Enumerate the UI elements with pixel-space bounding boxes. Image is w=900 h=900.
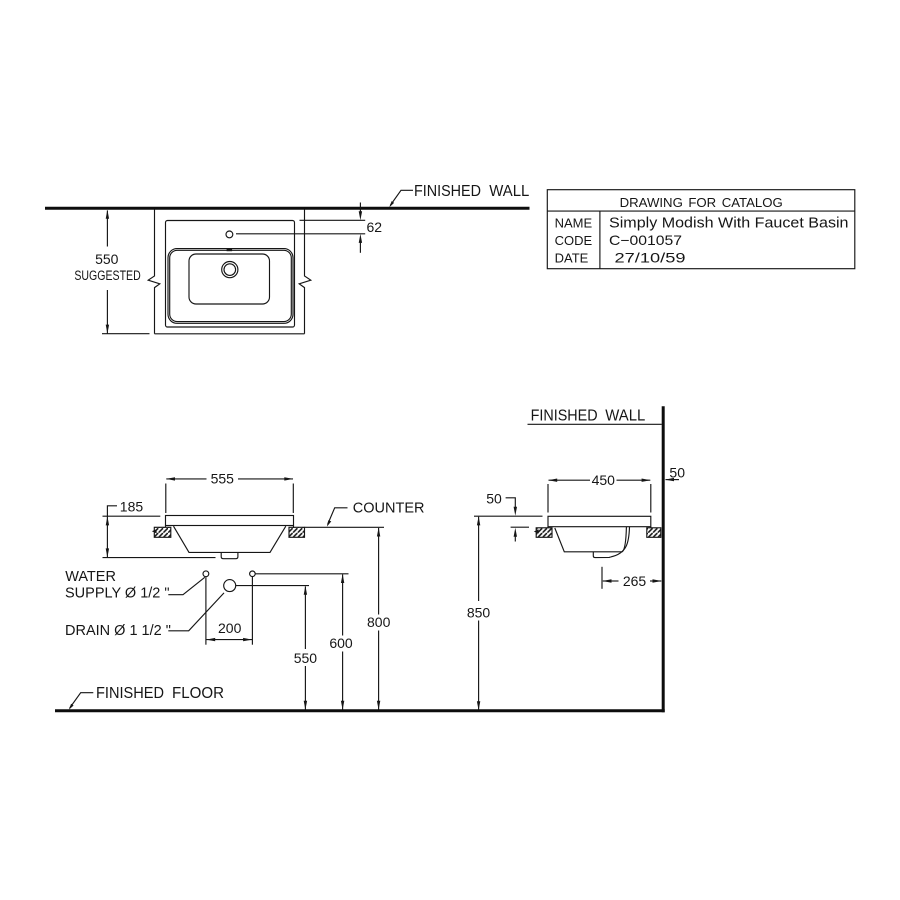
svg-text:NAME: NAME [555, 216, 593, 231]
svg-text:450: 450 [592, 472, 616, 488]
svg-text:550: 550 [294, 650, 318, 666]
svg-text:200: 200 [218, 620, 242, 636]
svg-text:185: 185 [120, 499, 144, 515]
svg-text:850: 850 [467, 605, 491, 621]
svg-text:50: 50 [486, 491, 502, 507]
svg-text:SUPPLY Ø 1/2 ": SUPPLY Ø 1/2 " [65, 585, 170, 601]
svg-text:CODE: CODE [555, 233, 593, 248]
svg-text:600: 600 [329, 635, 353, 651]
svg-text:WATER: WATER [65, 569, 116, 585]
svg-text:Simply Modish With Faucet Basi: Simply Modish With Faucet Basin [609, 216, 849, 232]
svg-text:DRAWINGFORCATALOG: DRAWINGFORCATALOG [620, 195, 783, 210]
svg-text:62: 62 [367, 219, 383, 235]
svg-text:C−001057: C−001057 [609, 232, 682, 248]
svg-text:DATE: DATE [555, 251, 589, 266]
svg-text:FINISHEDWALL: FINISHEDWALL [531, 408, 646, 425]
svg-text:265: 265 [623, 573, 647, 589]
svg-text:800: 800 [367, 614, 391, 630]
svg-text:COUNTER: COUNTER [353, 500, 425, 516]
svg-text:FINISHEDWALL: FINISHEDWALL [414, 183, 530, 200]
svg-text:DRAIN Ø 1 1/2 ": DRAIN Ø 1 1/2 " [65, 623, 171, 639]
svg-text:50: 50 [669, 464, 685, 480]
svg-text:FINISHEDFLOOR: FINISHEDFLOOR [96, 685, 224, 702]
svg-text:27/10/59: 27/10/59 [615, 250, 686, 266]
svg-text:550: 550 [95, 251, 119, 267]
svg-text:SUGGESTED: SUGGESTED [74, 268, 140, 283]
svg-text:555: 555 [211, 470, 235, 486]
